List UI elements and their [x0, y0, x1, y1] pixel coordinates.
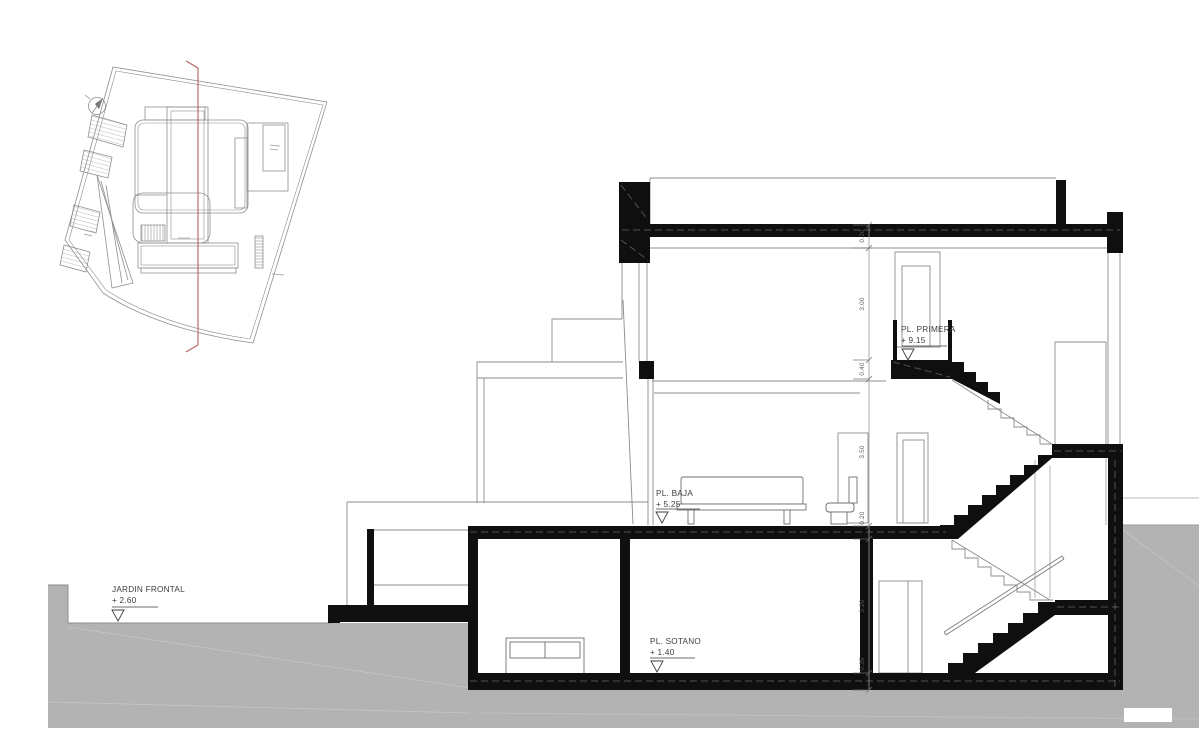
roof-left-block — [619, 182, 650, 263]
dim-ground-floor-height: 3.50 — [859, 445, 866, 458]
section-drawing-svg: JARDIN FRONTAL + 2.60 PL. SOTANO + 1.40 … — [0, 0, 1199, 739]
level-label: PL. PRIMERA — [901, 325, 956, 334]
roof-right-corner — [1107, 212, 1123, 253]
level-value: + 2.60 — [112, 596, 137, 605]
site-plan — [60, 61, 327, 352]
terrace-slab — [328, 605, 478, 622]
plan-stair-hatch — [255, 236, 263, 268]
level-value: + 1.40 — [650, 648, 675, 657]
wardrobe-outline — [897, 433, 928, 523]
architectural-drawing-sheet: JARDIN FRONTAL + 2.60 PL. SOTANO + 1.40 … — [0, 0, 1199, 739]
house-footprint — [135, 120, 248, 213]
stair-outlines — [944, 380, 1064, 635]
level-markers: JARDIN FRONTAL + 2.60 PL. SOTANO + 1.40 … — [112, 325, 956, 672]
front-volume-upper-box — [552, 319, 622, 362]
plot-boundary — [65, 67, 327, 343]
basement-door-outline — [879, 581, 922, 673]
level-marker-jardin: JARDIN FRONTAL + 2.60 — [112, 585, 185, 621]
level-label: JARDIN FRONTAL — [112, 585, 185, 594]
parapet-right-cap — [1056, 180, 1066, 224]
sideboard — [506, 638, 584, 675]
cut-structure — [328, 180, 1123, 690]
level-triangle-icon — [902, 349, 914, 360]
level-value: + 5.25 — [656, 500, 681, 509]
dim-roof-slab: 0.30 — [859, 229, 866, 242]
column-cut — [639, 361, 654, 379]
basement-wall-1 — [620, 539, 630, 673]
level-triangle-icon — [656, 512, 668, 523]
level-label: PL. SOTANO — [650, 637, 701, 646]
elevation-lines — [347, 178, 1120, 673]
level-triangle-icon — [651, 661, 663, 672]
first-floor-slab — [891, 360, 952, 379]
front-volume-outline — [477, 362, 623, 503]
stair-flight-basement-to-landing — [948, 602, 1055, 673]
level-value: + 9.15 — [901, 336, 926, 345]
level-label: PL. BAJA — [656, 489, 693, 498]
patio-wall — [367, 529, 374, 617]
level-marker-sotano: PL. SOTANO + 1.40 — [650, 637, 701, 672]
stair-handrail — [944, 556, 1064, 635]
plan-stair-hatch — [141, 225, 165, 241]
slab-dashed-details — [470, 185, 1121, 687]
toilet — [826, 477, 857, 524]
landing-door-outline — [1055, 342, 1106, 444]
dim-ground-slab: 0.20 — [859, 511, 866, 524]
dim-first-floor-height: 3.00 — [859, 297, 866, 310]
sloped-facade-edge — [623, 300, 633, 524]
section-cut-line — [186, 61, 198, 352]
terrain-white-patch — [1124, 708, 1172, 722]
bed — [677, 477, 806, 524]
stair-rail-left — [893, 320, 897, 362]
dim-basement-slab: 0.35 — [859, 657, 866, 670]
dim-basement-height: 3.20 — [859, 599, 866, 612]
dim-first-slab: 0.40 — [859, 362, 866, 375]
level-marker-primera: PL. PRIMERA + 9.15 — [901, 325, 956, 360]
upper-stair-cut-steps — [952, 362, 1000, 404]
level-triangle-icon — [112, 610, 124, 621]
